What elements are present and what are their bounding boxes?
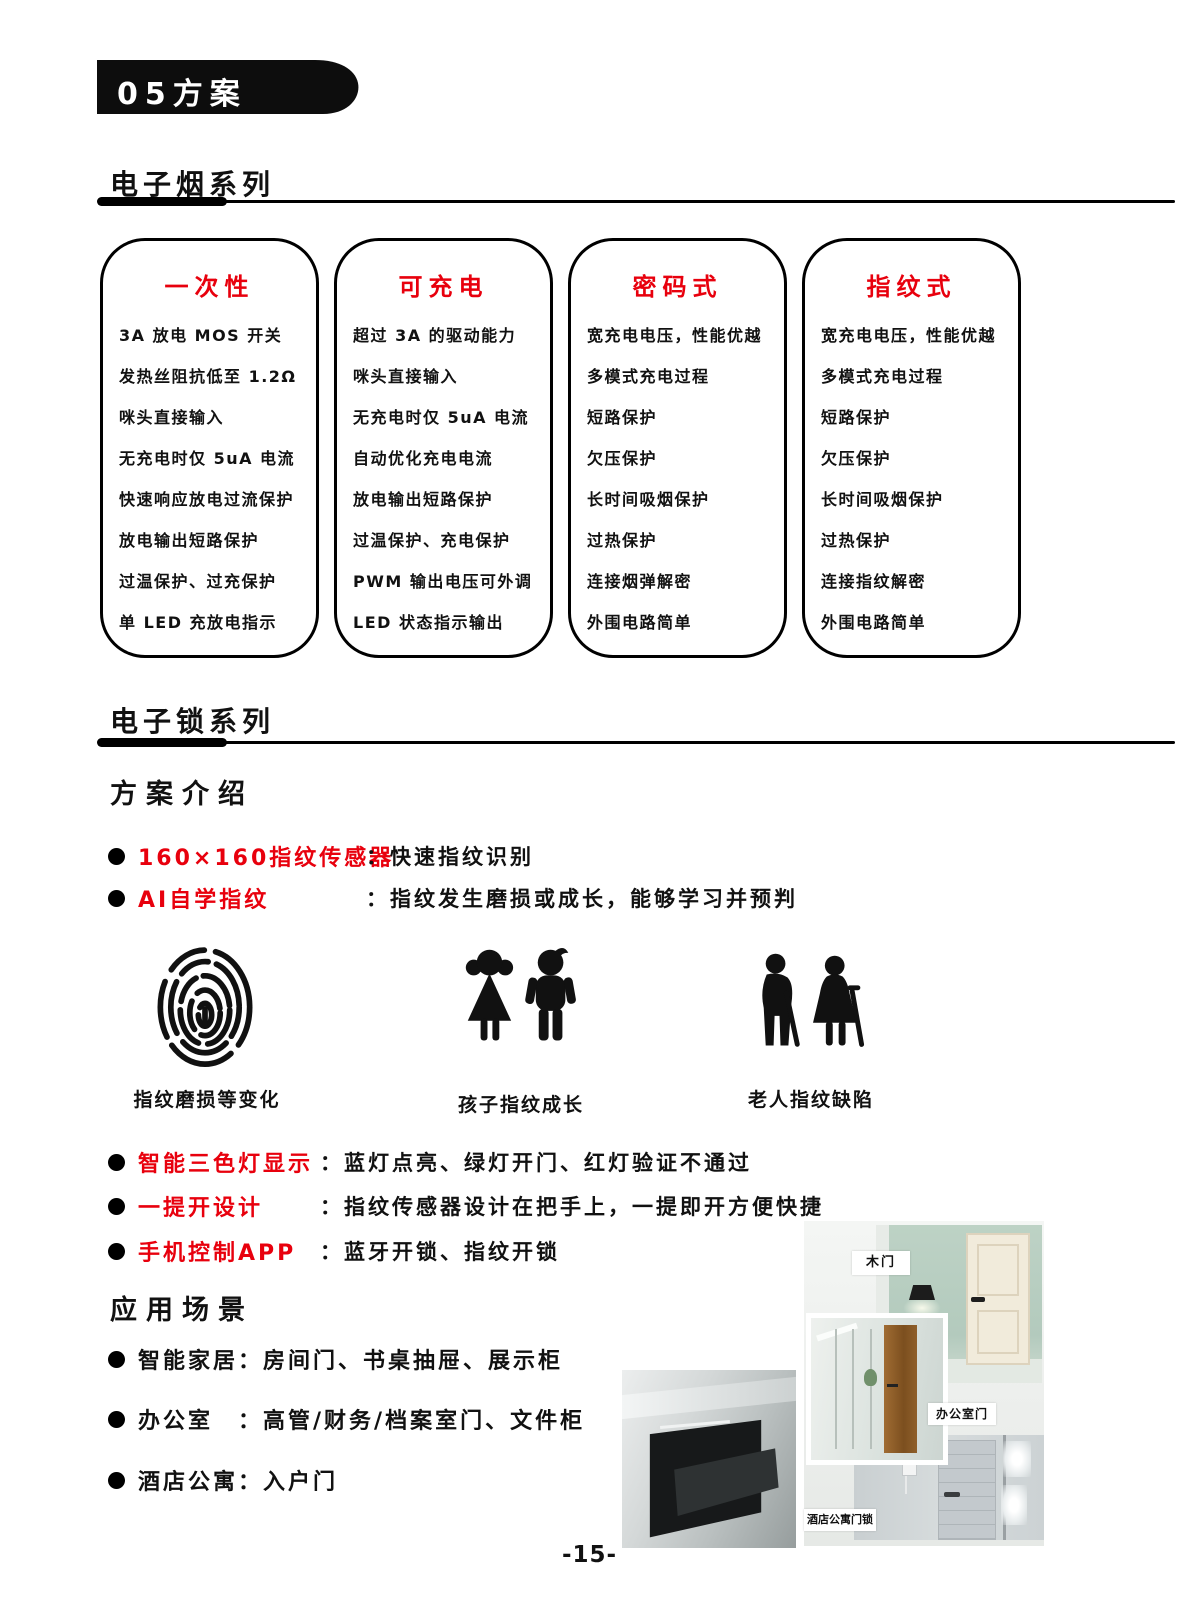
wooden-office-door xyxy=(884,1325,917,1453)
wood-door-label: 木门 xyxy=(852,1251,910,1275)
caption-child-growth: 孩子指纹成长 xyxy=(432,1090,610,1117)
app-row-hotel: 酒店公寓：入户门 xyxy=(108,1464,338,1496)
card-title: 可充电 xyxy=(337,267,550,302)
application-photo-collage: 木门 办公室门 酒店公寓门锁 xyxy=(620,1215,1100,1563)
door-handle xyxy=(971,1297,985,1302)
card-item: 长时间吸烟保护 xyxy=(587,479,784,520)
office-corridor-photo xyxy=(806,1313,948,1465)
card-item: 咪头直接输入 xyxy=(353,356,550,397)
card-item: 外围电路简单 xyxy=(821,602,1018,643)
feature-label: 智能三色灯显示 xyxy=(138,1146,320,1178)
smart-drawer-photo xyxy=(622,1370,796,1548)
card-item: 长时间吸烟保护 xyxy=(821,479,1018,520)
app-row-office: 办公室 ：高管/财务/档案室门、文件柜 xyxy=(108,1403,585,1435)
app-row-smart-home: 智能家居：房间门、书桌抽屉、展示柜 xyxy=(108,1343,563,1375)
cabinet-top xyxy=(622,1377,796,1419)
door-panel xyxy=(977,1310,1019,1354)
card-fingerprint: 指纹式 宽充电电压，性能优越 多模式充电过程 短路保护 欠压保护 长时间吸烟保护… xyxy=(802,238,1021,658)
bullet-icon xyxy=(108,1472,125,1489)
rule-line xyxy=(99,200,1175,203)
door-handle xyxy=(944,1492,960,1497)
card-item: 过温保护、过充保护 xyxy=(119,561,316,602)
scenes-heading: 应用场景 xyxy=(110,1288,254,1327)
feature-label: 一提开设计 xyxy=(138,1190,320,1222)
card-item: 外围电路简单 xyxy=(587,602,784,643)
office-door-label: 办公室门 xyxy=(928,1403,996,1425)
feature-row-sensor: 160×160指纹传感器 ：快速指纹识别 xyxy=(108,840,534,872)
elock-section-title: 电子锁系列 xyxy=(110,700,275,740)
card-items: 超过 3A 的驱动能力 咪头直接输入 无充电时仅 5uA 电流 自动优化充电电流… xyxy=(337,315,550,643)
card-title: 指纹式 xyxy=(805,267,1018,302)
app-text: 办公室 ：高管/财务/档案室门、文件柜 xyxy=(138,1403,585,1435)
ecig-section-rule xyxy=(97,197,1175,206)
card-item: 宽充电电压，性能优越 xyxy=(821,315,1018,356)
caption-elderly-defect: 老人指纹缺陷 xyxy=(722,1085,900,1112)
card-item: 宽充电电压，性能优越 xyxy=(587,315,784,356)
card-item: LED 状态指示输出 xyxy=(353,602,550,643)
caption-fingerprint-wear: 指纹磨损等变化 xyxy=(118,1085,296,1112)
bullet-icon xyxy=(108,1243,125,1260)
rule-line xyxy=(99,741,1175,744)
card-items: 宽充电电压，性能优越 多模式充电过程 短路保护 欠压保护 长时间吸烟保护 过热保… xyxy=(571,315,784,643)
rule-bar xyxy=(97,738,227,747)
wall-lamp-icon xyxy=(909,1285,935,1300)
app-text: 酒店公寓：入户门 xyxy=(138,1464,338,1496)
app-text: 智能家居：房间门、书桌抽屉、展示柜 xyxy=(138,1343,563,1375)
glass-partition xyxy=(870,1329,872,1448)
brochure-page: 05方案 电子烟系列 一次性 3A 放电 MOS 开关 发热丝阻抗低至 1.2Ω… xyxy=(0,0,1179,1600)
feature-desc: ：指纹发生磨损或成长，能够学习并预判 xyxy=(366,883,798,913)
feature-desc: ：蓝灯点亮、绿灯开门、红灯验证不通过 xyxy=(320,1147,752,1177)
crystal-lamp xyxy=(1001,1485,1027,1525)
card-item: 咪头直接输入 xyxy=(119,397,316,438)
card-item: 单 LED 充放电指示 xyxy=(119,602,316,643)
card-rechargeable: 可充电 超过 3A 的驱动能力 咪头直接输入 无充电时仅 5uA 电流 自动优化… xyxy=(334,238,553,658)
intro-heading: 方案介绍 xyxy=(110,772,254,811)
card-item: 自动优化充电电流 xyxy=(353,438,550,479)
bullet-icon xyxy=(108,1198,125,1215)
fingerprint-icon xyxy=(148,938,262,1086)
feature-row-phone-app: 手机控制APP ：蓝牙开锁、指纹开锁 xyxy=(108,1235,560,1267)
card-item: PWM 输出电压可外调 xyxy=(353,561,550,602)
elderly-icon xyxy=(746,950,884,1069)
bullet-icon xyxy=(108,848,125,865)
card-title: 一次性 xyxy=(103,267,316,302)
feature-label: AI自学指纹 xyxy=(138,882,366,914)
plant xyxy=(864,1369,877,1386)
card-item: 连接指纹解密 xyxy=(821,561,1018,602)
corridor-inner xyxy=(811,1318,943,1460)
card-title: 密码式 xyxy=(571,267,784,302)
card-item: 欠压保护 xyxy=(821,438,1018,479)
card-item: 3A 放电 MOS 开关 xyxy=(119,315,316,356)
card-item: 多模式充电过程 xyxy=(587,356,784,397)
banner-title: 05方案 xyxy=(117,69,247,113)
card-item: 放电输出短路保护 xyxy=(353,479,550,520)
card-item: 过热保护 xyxy=(587,520,784,561)
door-panel xyxy=(977,1244,1019,1296)
intercom-cord xyxy=(905,1476,907,1494)
card-items: 3A 放电 MOS 开关 发热丝阻抗低至 1.2Ω 咪头直接输入 无充电时仅 5… xyxy=(103,315,316,643)
hotel-lock-label: 酒店公寓门锁 xyxy=(804,1509,876,1531)
glass-partition xyxy=(835,1329,837,1448)
card-item: 无充电时仅 5uA 电流 xyxy=(353,397,550,438)
rule-bar xyxy=(97,197,227,206)
bullet-icon xyxy=(108,1411,125,1428)
card-item: 短路保护 xyxy=(821,397,1018,438)
feature-label: 160×160指纹传感器 xyxy=(138,840,366,872)
product-cards: 一次性 3A 放电 MOS 开关 发热丝阻抗低至 1.2Ω 咪头直接输入 无充电… xyxy=(100,238,1021,658)
card-item: 快速响应放电过流保护 xyxy=(119,479,316,520)
glass-partition xyxy=(852,1329,854,1448)
feature-desc: ：蓝牙开锁、指纹开锁 xyxy=(320,1236,560,1266)
children-icon xyxy=(452,945,590,1069)
card-item: 连接烟弹解密 xyxy=(587,561,784,602)
card-item: 无充电时仅 5uA 电流 xyxy=(119,438,316,479)
bullet-icon xyxy=(108,890,125,907)
feature-label: 手机控制APP xyxy=(138,1235,320,1267)
bullet-icon xyxy=(108,1154,125,1171)
feature-desc: ：快速指纹识别 xyxy=(366,841,534,871)
feature-row-ai: AI自学指纹 ：指纹发生磨损或成长，能够学习并预判 xyxy=(108,882,798,914)
card-item: 发热丝阻抗低至 1.2Ω xyxy=(119,356,316,397)
card-disposable: 一次性 3A 放电 MOS 开关 发热丝阻抗低至 1.2Ω 咪头直接输入 无充电… xyxy=(100,238,319,658)
card-item: 多模式充电过程 xyxy=(821,356,1018,397)
card-item: 过温保护、充电保护 xyxy=(353,520,550,561)
white-door xyxy=(966,1233,1030,1365)
door-handle xyxy=(887,1384,898,1387)
card-item: 放电输出短路保护 xyxy=(119,520,316,561)
section-number-banner: 05方案 xyxy=(97,60,359,114)
card-items: 宽充电电压，性能优越 多模式充电过程 短路保护 欠压保护 长时间吸烟保护 过热保… xyxy=(805,315,1018,643)
card-item: 欠压保护 xyxy=(587,438,784,479)
card-password: 密码式 宽充电电压，性能优越 多模式充电过程 短路保护 欠压保护 长时间吸烟保护… xyxy=(568,238,787,658)
card-item: 过热保护 xyxy=(821,520,1018,561)
bullet-icon xyxy=(108,1351,125,1368)
feature-row-tricolor-led: 智能三色灯显示 ：蓝灯点亮、绿灯开门、红灯验证不通过 xyxy=(108,1146,752,1178)
crystal-lamp xyxy=(1003,1441,1031,1477)
elock-section-rule xyxy=(97,738,1175,747)
card-item: 超过 3A 的驱动能力 xyxy=(353,315,550,356)
card-item: 短路保护 xyxy=(587,397,784,438)
